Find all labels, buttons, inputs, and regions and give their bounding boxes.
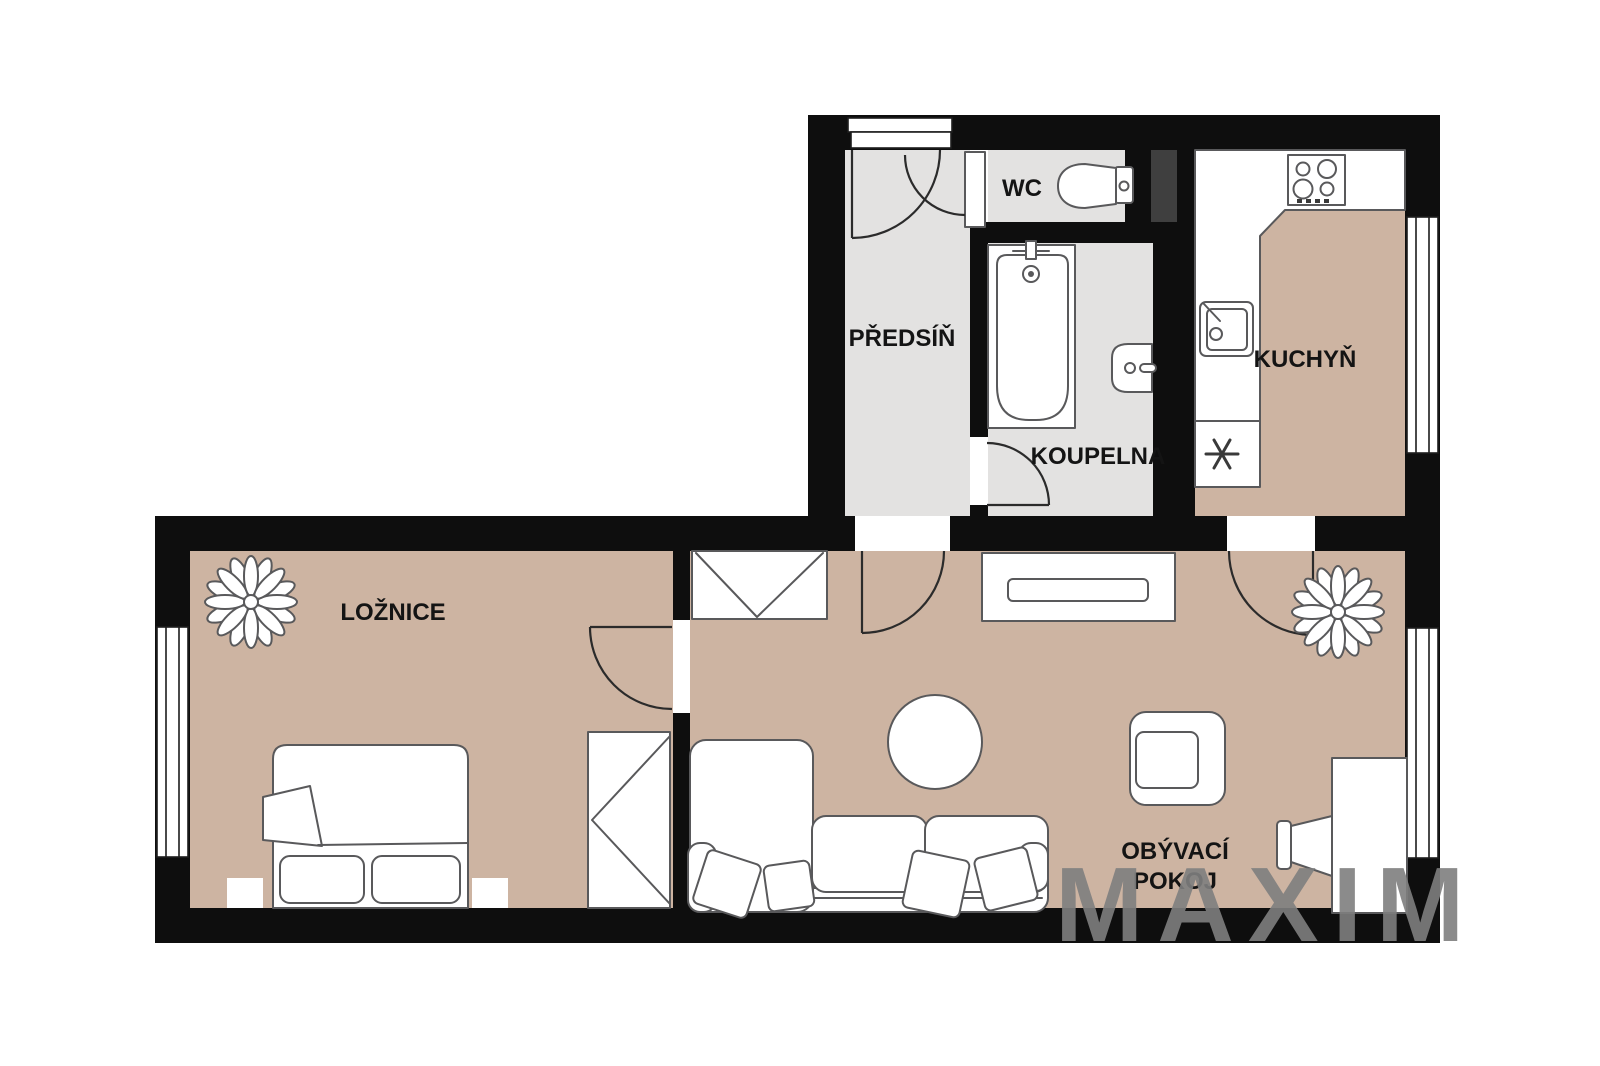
- bedroom-window: [157, 627, 188, 857]
- bathtub-spout: [1026, 241, 1036, 259]
- living-room-window: [1407, 628, 1438, 858]
- armchair-seat: [1136, 732, 1198, 788]
- coffee-table: [888, 695, 982, 789]
- bedroom-label: LOŽNICE: [340, 598, 445, 626]
- bathroom-sink: [1112, 344, 1156, 392]
- toilet-bowl: [1058, 164, 1116, 208]
- bed-pillow: [280, 856, 364, 903]
- entrance-threshold-outer: [848, 118, 952, 132]
- toilet-flush-button: [1120, 182, 1129, 191]
- nightstand-right: [472, 878, 508, 908]
- watermark-text: MAXIM: [1055, 846, 1478, 964]
- sideboard: [982, 553, 1175, 621]
- kitchen-window: [1407, 217, 1438, 453]
- bed-pillow: [372, 856, 460, 903]
- wall-kitchen-left: [1153, 243, 1195, 551]
- living-plant: [1292, 566, 1385, 659]
- hallway-label: PŘEDSÍŇ: [849, 324, 956, 352]
- bedroom-plant: [205, 556, 298, 649]
- nightstand-left: [227, 878, 263, 908]
- bathtub: [997, 241, 1068, 420]
- armchair: [1130, 712, 1225, 805]
- floorplan-image: WC KOUPELNA: [0, 0, 1600, 1066]
- wall-hallway-left: [808, 115, 845, 551]
- bathroom-sink-tap: [1140, 364, 1156, 372]
- bed: [263, 745, 468, 908]
- kitchen-sink: [1200, 302, 1253, 356]
- throw-pillow: [902, 850, 971, 919]
- stove: [1288, 155, 1345, 205]
- wc-label: WC: [1002, 175, 1042, 202]
- hallway-living-opening: [855, 516, 950, 551]
- wc-door-leaf: [965, 152, 985, 227]
- entrance-threshold-inner: [851, 132, 951, 148]
- throw-pillow: [763, 860, 815, 912]
- bathroom-opening: [970, 437, 988, 505]
- kitchen-living-opening: [1227, 516, 1315, 551]
- utility-shaft: [1151, 150, 1177, 222]
- bathtub-drain-dot: [1028, 271, 1034, 277]
- bathroom-label: KOUPELNA: [1031, 443, 1166, 470]
- floorplan-svg: WC KOUPELNA: [0, 0, 1600, 1066]
- throw-pillow: [973, 846, 1038, 911]
- bedroom-opening: [673, 620, 690, 713]
- living-wardrobe: [692, 551, 827, 619]
- kitchen-label: KUCHYŇ: [1254, 345, 1357, 373]
- toilet: [1058, 164, 1133, 208]
- bedroom-wardrobe: [588, 732, 670, 908]
